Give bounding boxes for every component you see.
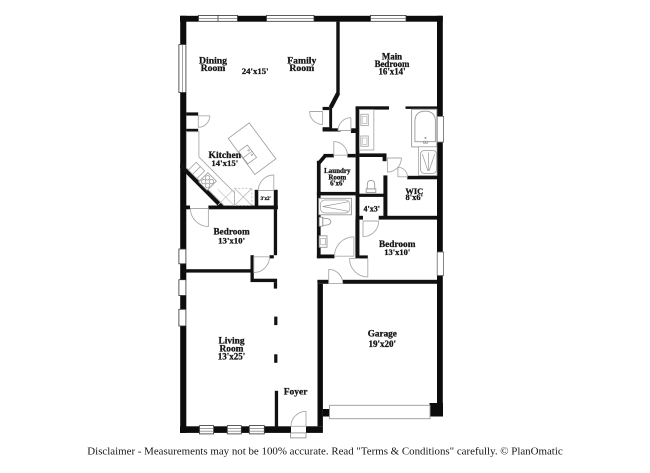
- svg-text:14'x15': 14'x15': [211, 158, 238, 168]
- svg-text:4'x3': 4'x3': [363, 205, 379, 214]
- svg-text:13'x25': 13'x25': [218, 352, 246, 362]
- svg-text:Foyer: Foyer: [284, 387, 309, 397]
- svg-text:Room: Room: [201, 63, 226, 74]
- svg-text:Disclaimer - Measurements may: Disclaimer - Measurements may not be 100…: [87, 446, 563, 458]
- svg-text:16'x14': 16'x14': [378, 66, 405, 76]
- svg-text:Garage: Garage: [368, 329, 397, 339]
- svg-text:6'x6': 6'x6': [330, 180, 344, 188]
- svg-text:Room: Room: [289, 63, 314, 74]
- svg-text:19'x20': 19'x20': [369, 339, 397, 349]
- svg-text:13'x10': 13'x10': [218, 235, 245, 245]
- svg-text:3'x2': 3'x2': [261, 197, 272, 202]
- svg-text:8'x6': 8'x6': [406, 192, 423, 202]
- svg-text:24'x15': 24'x15': [242, 66, 269, 76]
- svg-text:13'x10': 13'x10': [384, 247, 410, 257]
